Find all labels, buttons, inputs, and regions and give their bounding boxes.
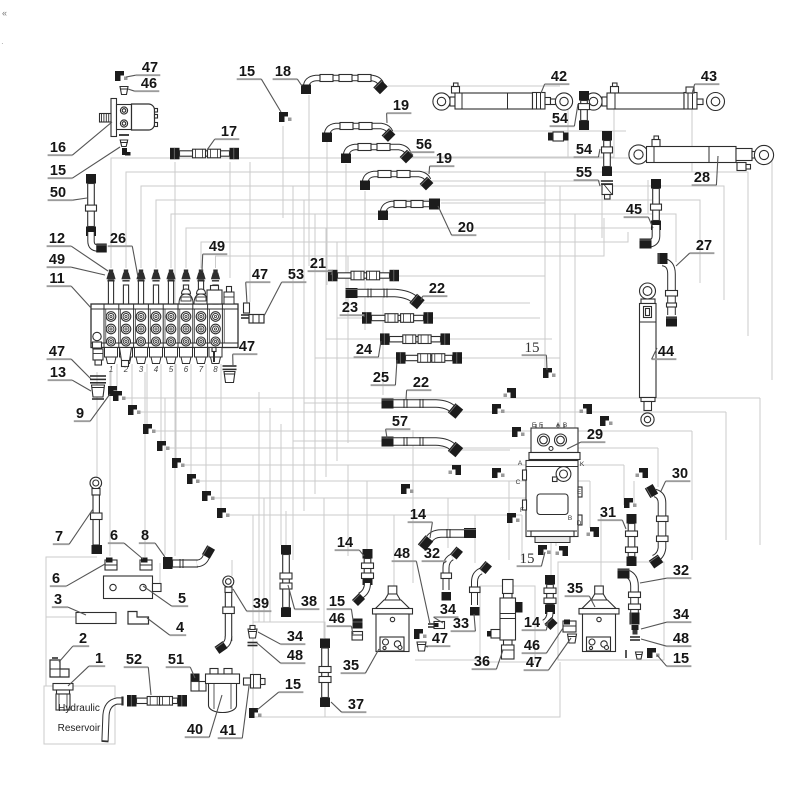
svg-text:6: 6 <box>110 528 118 544</box>
svg-text:29: 29 <box>587 427 603 443</box>
svg-text:K: K <box>580 461 585 468</box>
svg-text:9: 9 <box>76 406 84 422</box>
svg-text:47: 47 <box>142 60 158 76</box>
svg-text:6: 6 <box>184 365 189 374</box>
svg-text:19: 19 <box>393 98 409 114</box>
svg-text:28: 28 <box>694 170 710 186</box>
svg-text:14: 14 <box>524 615 540 631</box>
svg-text:1: 1 <box>95 651 103 667</box>
svg-text:8: 8 <box>141 528 149 544</box>
svg-text:22: 22 <box>413 375 429 391</box>
svg-text:4: 4 <box>154 365 159 374</box>
svg-text:55: 55 <box>576 165 592 181</box>
svg-text:19: 19 <box>436 151 452 167</box>
svg-text:35: 35 <box>567 581 583 597</box>
svg-text:37: 37 <box>348 697 364 713</box>
svg-text:14: 14 <box>410 507 426 523</box>
svg-text:3: 3 <box>139 365 144 374</box>
svg-text:D: D <box>577 520 582 527</box>
svg-text:50: 50 <box>50 185 66 201</box>
svg-text:16: 16 <box>50 140 66 156</box>
svg-text:14: 14 <box>337 535 353 551</box>
svg-text:Reservoir: Reservoir <box>58 723 101 734</box>
svg-text:7: 7 <box>55 529 63 545</box>
svg-text:B: B <box>568 515 572 522</box>
svg-text:35: 35 <box>343 658 359 674</box>
svg-text:47: 47 <box>49 344 65 360</box>
svg-text:48: 48 <box>673 631 689 647</box>
svg-text:30: 30 <box>672 466 688 482</box>
svg-text:33: 33 <box>453 616 469 632</box>
svg-text:15: 15 <box>239 64 255 80</box>
svg-text:57: 57 <box>392 414 408 430</box>
svg-text:49: 49 <box>209 239 225 255</box>
svg-text:17: 17 <box>221 124 237 140</box>
svg-text:47: 47 <box>239 339 255 355</box>
svg-text:26: 26 <box>110 231 126 247</box>
svg-text:32: 32 <box>673 563 689 579</box>
svg-text:44: 44 <box>658 344 674 360</box>
svg-text:11: 11 <box>49 271 64 287</box>
svg-text:3: 3 <box>54 592 62 608</box>
svg-text:1: 1 <box>109 365 113 374</box>
svg-text:22: 22 <box>429 281 445 297</box>
svg-text:38: 38 <box>301 594 317 610</box>
svg-text:46: 46 <box>329 611 345 627</box>
svg-text:2: 2 <box>79 631 87 647</box>
svg-text:6: 6 <box>52 571 60 587</box>
svg-text:41: 41 <box>220 723 236 739</box>
svg-text:E: E <box>577 489 582 496</box>
svg-text:27: 27 <box>696 238 712 254</box>
svg-text:45: 45 <box>626 202 642 218</box>
svg-text:54: 54 <box>552 111 568 127</box>
svg-text:48: 48 <box>287 648 303 664</box>
svg-text:42: 42 <box>551 69 567 85</box>
svg-text:48: 48 <box>394 546 410 562</box>
svg-text:A: A <box>556 422 561 429</box>
svg-text:32: 32 <box>424 546 440 562</box>
svg-text:15: 15 <box>673 651 689 667</box>
svg-text:Hydraulic: Hydraulic <box>58 703 100 714</box>
svg-text:56: 56 <box>416 137 432 153</box>
svg-text:15: 15 <box>525 340 540 356</box>
svg-text:47: 47 <box>526 655 542 671</box>
svg-text:20: 20 <box>458 220 474 236</box>
svg-text:18: 18 <box>275 64 291 80</box>
svg-text:8: 8 <box>213 365 218 374</box>
svg-text:46: 46 <box>141 76 157 92</box>
svg-text:23: 23 <box>342 300 358 316</box>
svg-text:7: 7 <box>199 365 204 374</box>
svg-text:40: 40 <box>187 722 203 738</box>
svg-text:15: 15 <box>520 551 535 567</box>
svg-text:54: 54 <box>576 142 592 158</box>
svg-text:53: 53 <box>288 267 304 283</box>
svg-text:2: 2 <box>123 365 129 374</box>
svg-text:4: 4 <box>176 620 184 636</box>
svg-text:C: C <box>516 479 521 486</box>
svg-text:51: 51 <box>168 652 184 668</box>
svg-text:B: B <box>563 422 567 429</box>
svg-text:13: 13 <box>50 365 66 381</box>
svg-text:F: F <box>539 422 543 429</box>
svg-text:47: 47 <box>252 267 268 283</box>
svg-text:«: « <box>2 8 7 18</box>
svg-text:43: 43 <box>701 69 717 85</box>
svg-text:E: E <box>532 422 537 429</box>
svg-text:F: F <box>520 507 524 514</box>
svg-text:31: 31 <box>600 505 616 521</box>
svg-text:A: A <box>518 460 523 467</box>
svg-text:·: · <box>1 39 4 48</box>
svg-text:25: 25 <box>373 370 389 386</box>
svg-text:47: 47 <box>432 631 448 647</box>
svg-text:39: 39 <box>253 596 269 612</box>
svg-text:12: 12 <box>49 231 65 247</box>
svg-text:24: 24 <box>356 342 372 358</box>
svg-text:52: 52 <box>126 652 142 668</box>
svg-text:49: 49 <box>49 252 65 268</box>
svg-text:34: 34 <box>673 607 689 623</box>
svg-text:15: 15 <box>50 163 66 179</box>
svg-text:34: 34 <box>287 629 303 645</box>
svg-text:21: 21 <box>310 256 326 272</box>
svg-text:15: 15 <box>285 677 301 693</box>
svg-text:15: 15 <box>329 594 345 610</box>
svg-text:5: 5 <box>169 365 174 374</box>
svg-text:46: 46 <box>524 638 540 654</box>
svg-text:5: 5 <box>178 591 186 607</box>
svg-text:36: 36 <box>474 654 490 670</box>
